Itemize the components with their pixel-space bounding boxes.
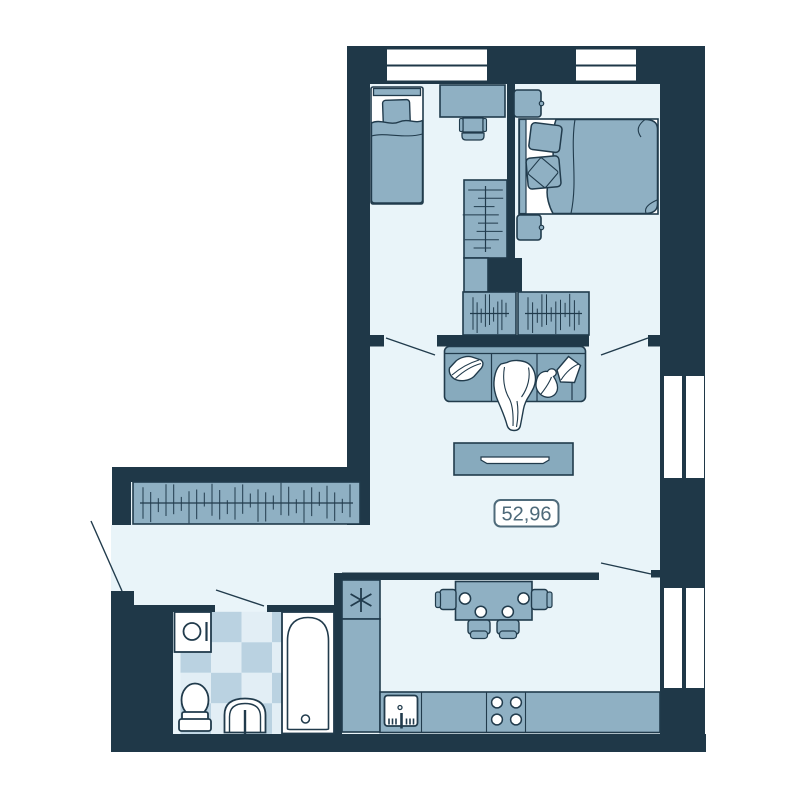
svg-text:52,96: 52,96 xyxy=(501,504,551,526)
